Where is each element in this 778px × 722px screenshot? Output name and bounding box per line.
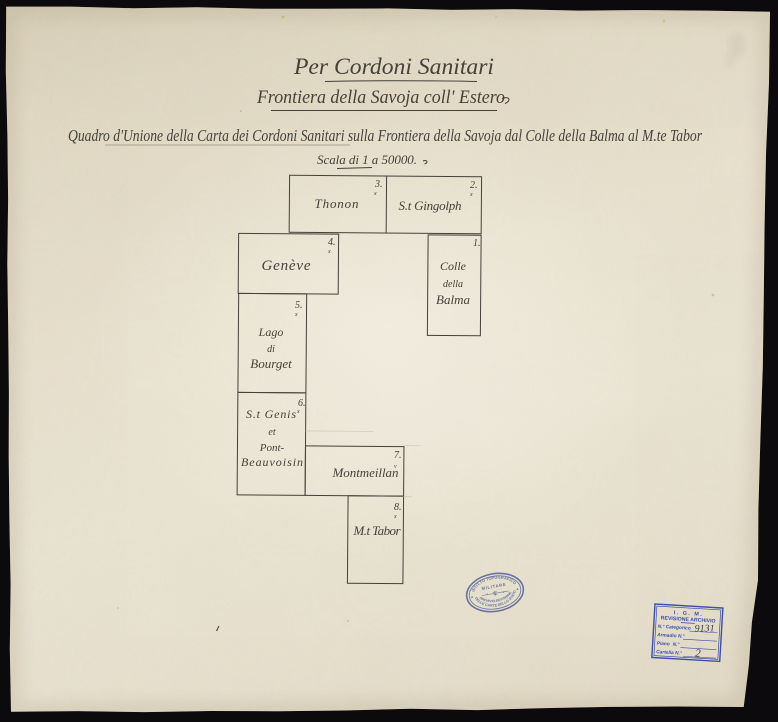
svg-text:Genève: Genève [262,258,311,274]
svg-text:x: x [294,312,298,318]
svg-text:N.° Categorico: N.° Categorico [657,624,690,632]
svg-text:Pont-: Pont- [259,442,285,454]
svg-text:Beauvoisin: Beauvoisin [241,455,303,469]
svg-text:7.: 7. [394,450,402,461]
svg-text:Cartella: Cartella [656,649,674,656]
svg-text:x: x [393,514,397,520]
svg-text:Lago: Lago [258,325,284,339]
svg-text:5.: 5. [295,300,303,311]
svg-text:N.°: N.° [672,642,679,648]
svg-text:x: x [373,191,377,197]
svg-text:3.: 3. [374,179,383,190]
svg-text:di: di [267,344,275,355]
svg-text:Thonon: Thonon [315,196,359,211]
svg-text:x: x [327,249,331,255]
svg-text:Montmeillan: Montmeillan [332,465,399,480]
svg-text:8.: 8. [394,502,402,513]
svg-text:Scala di 1 a 50000.: Scala di 1 a 50000. [317,152,417,167]
svg-text:S.t Gingolph: S.t Gingolph [399,198,462,213]
svg-text:MILITARE: MILITARE [481,582,507,591]
svg-text:S.t Genis: S.t Genis [246,407,296,421]
svg-text:Armadio N.°: Armadio N.° [656,632,685,640]
svg-text:Per Cordoni Sanitari: Per Cordoni Sanitari [293,54,494,79]
svg-text:Piano: Piano [656,641,669,648]
svg-text:Balma: Balma [436,292,470,307]
svg-text:*: * [516,588,520,594]
svg-text:N.°: N.° [675,650,682,656]
svg-text:4.: 4. [328,237,336,248]
svg-text:9131: 9131 [695,623,715,634]
svg-text:della: della [443,279,463,290]
svg-text:v: v [394,464,397,470]
svg-text:2.: 2. [470,180,478,191]
svg-text:et: et [268,427,275,438]
svg-text:Colle: Colle [440,259,467,273]
svg-text:x: x [296,409,300,415]
svg-text:1.: 1. [473,238,481,249]
svg-text:Quadro d'Unione della Carta de: Quadro d'Unione della Carta dei Cordoni … [68,126,702,145]
svg-text:M.t Tabor: M.t Tabor [353,523,402,538]
svg-text:6.: 6. [298,398,306,409]
svg-text:Bourget: Bourget [250,356,292,371]
svg-text:Frontiera della Savoja coll' E: Frontiera della Savoja coll' Estero [256,88,505,108]
svg-text:x: x [469,192,473,198]
